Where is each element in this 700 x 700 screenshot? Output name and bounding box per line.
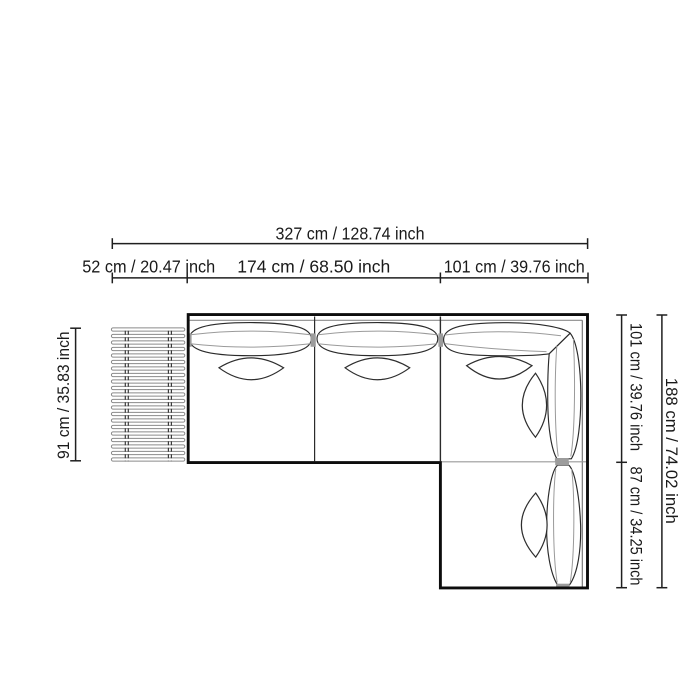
svg-text:87 cm / 34.25 inch: 87 cm / 34.25 inch bbox=[627, 467, 645, 586]
svg-text:188 cm / 74.02 inch: 188 cm / 74.02 inch bbox=[662, 378, 680, 524]
svg-text:91 cm / 35.83 inch: 91 cm / 35.83 inch bbox=[55, 331, 73, 459]
svg-text:101 cm / 39.76 inch: 101 cm / 39.76 inch bbox=[627, 323, 645, 451]
svg-text:52 cm / 20.47 inch: 52 cm / 20.47 inch bbox=[82, 257, 215, 277]
svg-text:327 cm / 128.74 inch: 327 cm / 128.74 inch bbox=[276, 224, 425, 244]
svg-text:174 cm / 68.50 inch: 174 cm / 68.50 inch bbox=[237, 257, 390, 277]
svg-text:101 cm / 39.76 inch: 101 cm / 39.76 inch bbox=[444, 257, 585, 277]
